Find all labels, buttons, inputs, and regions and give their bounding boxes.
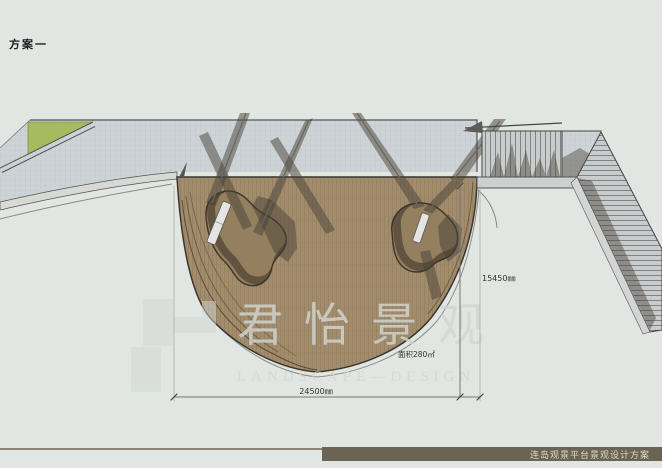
watermark-cn: 君怡景观 bbox=[237, 298, 505, 352]
plan-drawing: 君怡景观 LANDSCAPE—DESIGN 24500㎜ 15450㎜ 面积28… bbox=[0, 0, 662, 468]
footer-title: 连岛观景平台景观设计方案 bbox=[530, 449, 650, 461]
watermark-en: LANDSCAPE—DESIGN bbox=[237, 369, 475, 385]
design-sheet: 君怡景观 LANDSCAPE—DESIGN 24500㎜ 15450㎜ 面积28… bbox=[0, 0, 662, 468]
dim-width-label: 24500㎜ bbox=[299, 387, 332, 396]
area-label: 面积280㎡ bbox=[398, 349, 435, 359]
page-title: 方案一 bbox=[9, 37, 48, 51]
dim-height-label: 15450㎜ bbox=[482, 274, 515, 283]
